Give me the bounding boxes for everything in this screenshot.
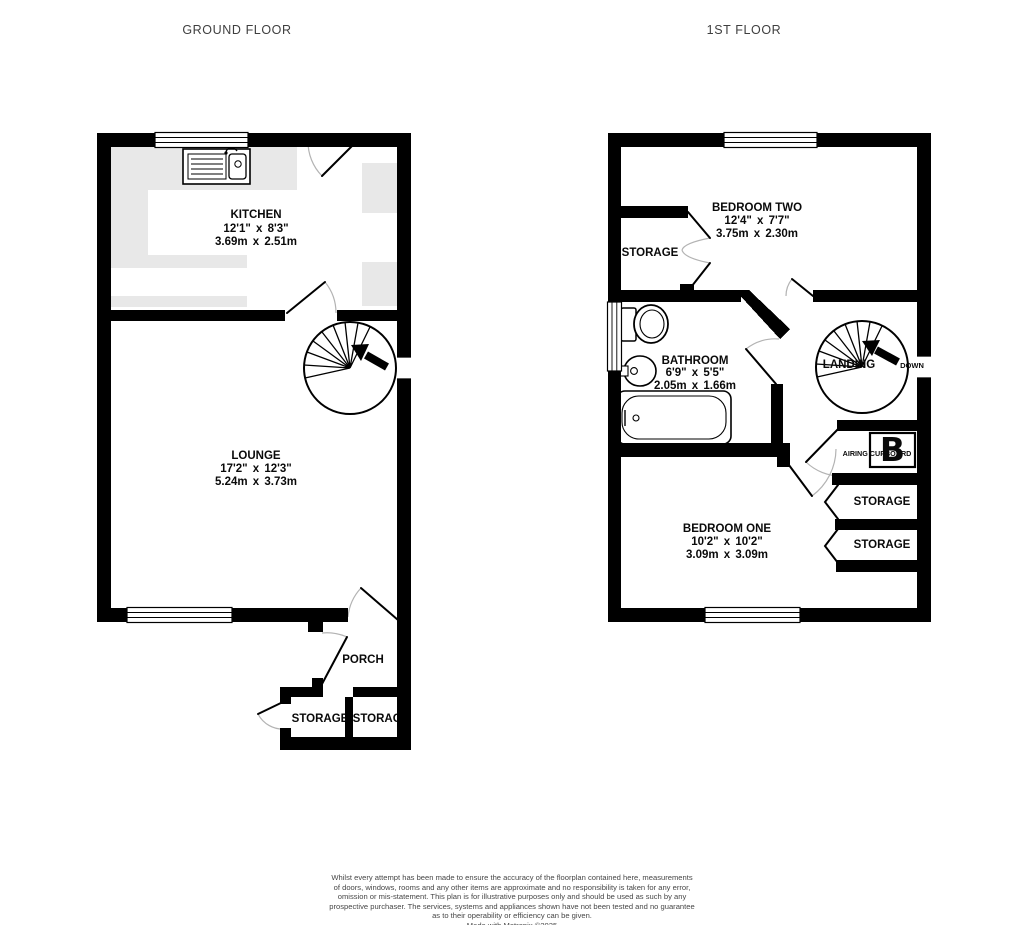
- ground-floor-plan: KITCHEN 12'1" x 8'3" 3.69m x 2.51m LOUNG…: [97, 133, 411, 751]
- bedroom-one-label: BEDROOM ONE: [683, 523, 772, 535]
- bathroom-door: [746, 349, 776, 384]
- disclaimer-credit: Made with Metropix ©2025: [0, 921, 1024, 925]
- lounge-window: [127, 608, 232, 623]
- storage-top-bifold-door: [825, 485, 838, 519]
- lounge-metric: 5.24m x 3.73m: [215, 476, 297, 488]
- bedroom-two-door: [792, 279, 813, 296]
- kitchen-label: KITCHEN: [230, 209, 281, 221]
- bedroom-one-metric: 3.09m x 3.09m: [686, 549, 768, 561]
- front-door: [361, 588, 398, 620]
- kitchen-sink-icon: [183, 148, 250, 184]
- disclaimer-line: omission or mis-statement. This plan is …: [0, 892, 1024, 902]
- floorplan-page: KITCHEN 12'1" x 8'3" 3.69m x 2.51m LOUNG…: [0, 0, 1024, 925]
- kitchen-lounge-door: [287, 282, 325, 313]
- first-floor-plan: B: [608, 133, 932, 623]
- disclaimer-line: Whilst every attempt has been made to en…: [0, 873, 1024, 883]
- bedroom-one-window: [705, 608, 800, 623]
- landing-label: LANDING: [823, 359, 875, 371]
- basin-icon: [619, 356, 656, 386]
- porch-label: PORCH: [342, 654, 384, 666]
- bedroom-one-imperial: 10'2" x 10'2": [691, 536, 763, 548]
- storage-bottom-label: STORAGE: [854, 539, 911, 551]
- bedroom-two-window: [724, 133, 817, 148]
- bathroom-metric: 2.05m x 1.66m: [654, 380, 736, 392]
- bathroom-label: BATHROOM: [662, 355, 729, 367]
- lounge-label: LOUNGE: [231, 450, 281, 462]
- storage-top-label: STORAGE: [854, 496, 911, 508]
- disclaimer-line: prospective purchaser. The services, sys…: [0, 902, 1024, 912]
- bedroom-two-label: BEDROOM TWO: [712, 202, 802, 214]
- storage-bottom-bifold-door: [825, 529, 838, 563]
- airing-cupboard-label: AIRING CUPBOARD: [843, 449, 912, 458]
- disclaimer-text: Whilst every attempt has been made to en…: [0, 873, 1024, 925]
- kitchen-metric: 3.69m x 2.51m: [215, 236, 297, 248]
- ground-floor-title: GROUND FLOOR: [182, 23, 291, 37]
- disclaimer-line: as to their operability or efficiency ca…: [0, 911, 1024, 921]
- bedroom-two-imperial: 12'4" x 7'7": [724, 215, 789, 227]
- storage-left-label: STORAGE: [292, 713, 349, 725]
- lounge-imperial: 17'2" x 12'3": [220, 463, 292, 475]
- bathroom-imperial: 6'9" x 5'5": [666, 367, 725, 379]
- kitchen-window: [155, 133, 248, 148]
- kitchen-imperial: 12'1" x 8'3": [223, 223, 288, 235]
- bedroom-two-metric: 3.75m x 2.30m: [716, 228, 798, 240]
- bathroom-window: [608, 302, 622, 371]
- disclaimer-line: of doors, windows, rooms and any other i…: [0, 883, 1024, 893]
- first-storage-label: STORAGE: [622, 247, 679, 259]
- toilet-icon: [621, 305, 668, 343]
- down-label: DOWN: [900, 361, 924, 370]
- first-floor-title: 1ST FLOOR: [707, 23, 782, 37]
- ground-spiral-staircase: [304, 322, 396, 414]
- floorplan-canvas: KITCHEN 12'1" x 8'3" 3.69m x 2.51m LOUNG…: [0, 0, 1024, 925]
- bathtub-icon: [617, 391, 731, 444]
- stair-wall-notch: [397, 357, 411, 379]
- storage-bifold-door-top: [688, 212, 710, 238]
